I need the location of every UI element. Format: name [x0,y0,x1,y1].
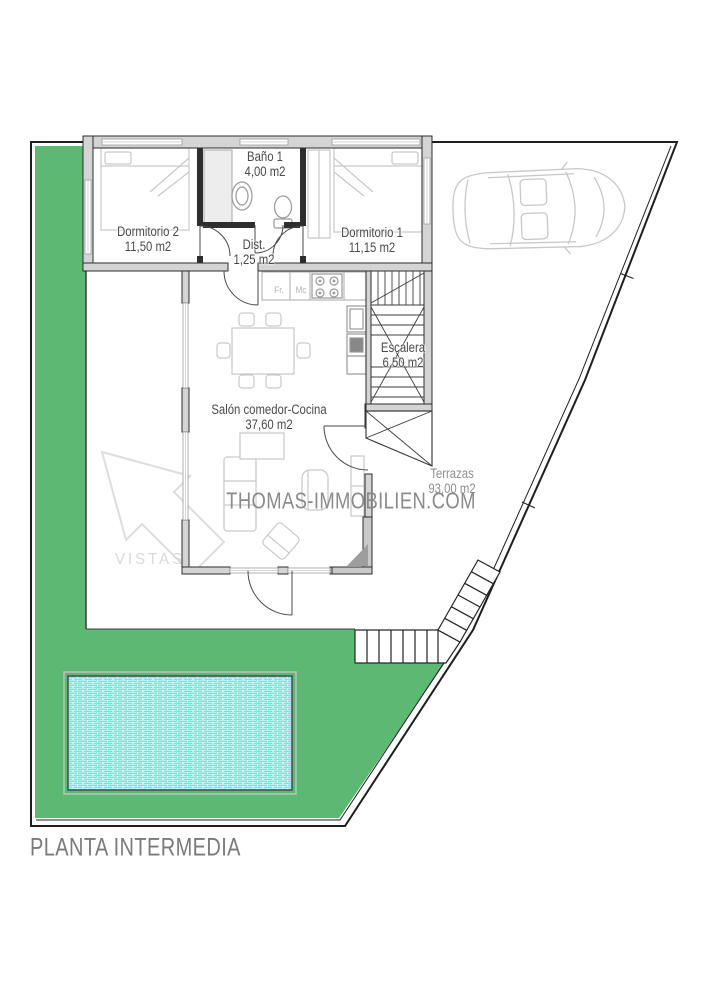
dining-table-icon [217,313,310,388]
room-label-salon: Salón comedor-Cocina 37,60 m2 [211,402,326,432]
bed-dormitorio2-icon [101,148,189,230]
room-label-dormitorio2: Dormitorio 2 11,50 m2 [117,224,179,254]
room-area: 6,50 m2 [381,355,425,370]
room-label-dist: Dist. 1,25 m2 [234,237,275,267]
room-name: Dormitorio 2 [117,224,179,239]
watermark: THOMAS-IMMOBILIEN.COM [226,488,476,515]
car-icon [451,160,626,258]
room-label-escalera: Escalera 6,50 m2 [381,340,425,370]
room-name: Baño 1 [245,149,286,164]
room-area: 37,60 m2 [211,417,326,432]
kitchen-units [347,306,366,374]
room-label-bano1: Baño 1 4,00 m2 [245,149,286,179]
room-area: 11,50 m2 [117,239,179,254]
room-area: 11,15 m2 [341,240,403,255]
kitchen-micro-label: Mc [296,285,307,295]
stove-icon [312,274,342,298]
page-title: PLANTA INTERMEDIA [30,834,241,863]
room-name: Dist. [234,237,275,252]
kitchen-fridge-label: Fr. [274,285,283,295]
swimming-pool [64,672,296,794]
exterior-stairs [355,560,500,663]
room-name: Escalera [381,340,425,355]
room-name: Terrazas [428,466,475,481]
room-area: 1,25 m2 [234,252,275,267]
wardrobe-icon [308,150,330,238]
floor-plan-page: Dormitorio 2 11,50 m2 Baño 1 4,00 m2 Dis… [0,0,706,1000]
terrace-edge-lines [86,271,355,629]
vistas-label: VISTAS [115,551,185,569]
room-label-dormitorio1: Dormitorio 1 11,15 m2 [341,225,403,255]
room-name: Salón comedor-Cocina [211,402,326,417]
room-name: Dormitorio 1 [341,225,403,240]
room-area: 4,00 m2 [245,164,286,179]
bed-dormitorio1-icon [334,148,422,232]
